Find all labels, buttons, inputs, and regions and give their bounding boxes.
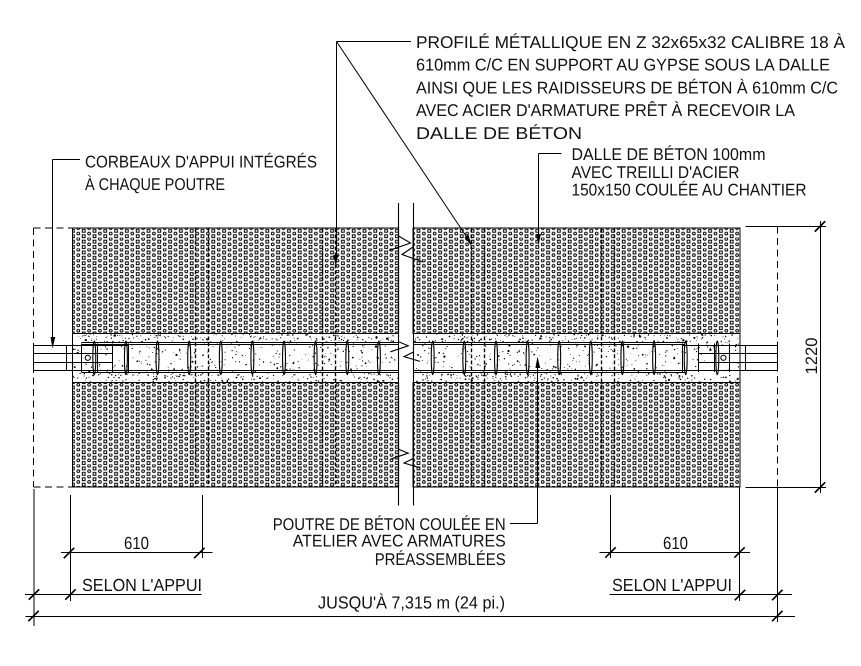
svg-text:150x150 COULÉE AU CHANTIER: 150x150 COULÉE AU CHANTIER [572,181,807,200]
svg-text:610mm C/C EN SUPPORT AU GYPSE: 610mm C/C EN SUPPORT AU GYPSE SOUS LA DA… [416,56,830,75]
svg-text:CORBEAUX D'APPUI INTÉGRÉS: CORBEAUX D'APPUI INTÉGRÉS [85,153,317,172]
svg-text:AVEC ACIER D'ARMATURE PRÊT À R: AVEC ACIER D'ARMATURE PRÊT À RECEVOIR LA [416,101,796,120]
svg-text:DALLE DE BÉTON: DALLE DE BÉTON [416,124,582,143]
svg-text:AVEC TREILLI D'ACIER: AVEC TREILLI D'ACIER [572,163,740,182]
svg-text:À CHAQUE POUTRE: À CHAQUE POUTRE [85,175,225,194]
svg-text:1220: 1220 [803,338,821,375]
svg-text:610: 610 [124,533,149,553]
svg-text:AINSI QUE LES RAIDISSEURS DE B: AINSI QUE LES RAIDISSEURS DE BÉTON À 610… [416,79,838,98]
svg-text:610: 610 [663,533,688,553]
svg-text:SELON L'APPUI: SELON L'APPUI [612,575,732,595]
svg-text:DALLE DE BÉTON 100mm: DALLE DE BÉTON 100mm [572,145,766,164]
svg-text:PRÉASSEMBLÉES: PRÉASSEMBLÉES [375,550,506,569]
svg-text:SELON L'APPUI: SELON L'APPUI [82,575,202,595]
svg-text:JUSQU'À 7,315 m (24 pi.): JUSQU'À 7,315 m (24 pi.) [318,593,505,613]
svg-text:PROFILÉ MÉTALLIQUE EN Z 32x65x: PROFILÉ MÉTALLIQUE EN Z 32x65x32 CALIBRE… [416,33,846,52]
svg-text:ATELIER AVEC ARMATURES: ATELIER AVEC ARMATURES [293,531,506,550]
